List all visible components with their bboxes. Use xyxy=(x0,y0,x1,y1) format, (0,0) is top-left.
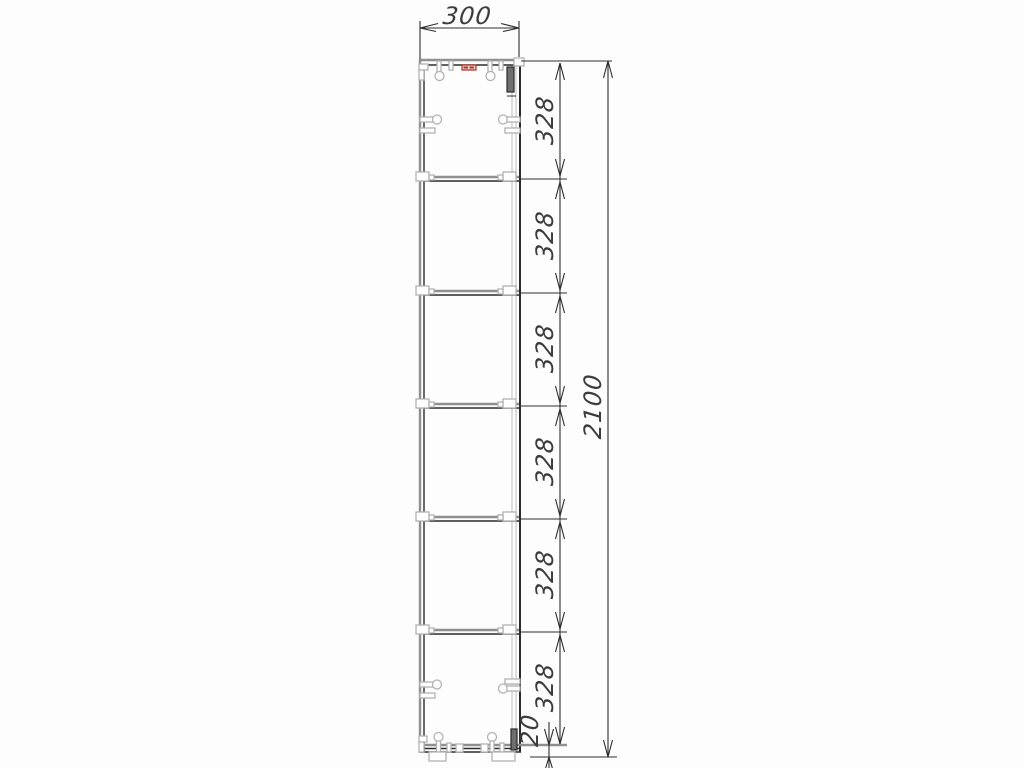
dimension-plinth: 20 xyxy=(516,712,553,768)
section-height-label: 328 xyxy=(531,94,559,146)
dimension-width: 300 xyxy=(420,2,519,59)
section-height-label: 328 xyxy=(531,209,559,261)
screw-icon xyxy=(420,680,442,698)
screw-icon xyxy=(499,115,521,133)
corner-block-icon xyxy=(514,58,524,66)
foot-icon xyxy=(492,752,515,761)
screw-icon xyxy=(486,61,495,81)
dimension-total-height: 2100 xyxy=(521,61,617,757)
screw-icon xyxy=(499,679,521,693)
foot-icon xyxy=(429,752,446,761)
section-height-label: 328 xyxy=(531,322,559,374)
screw-icon xyxy=(420,115,442,133)
section-height-label: 328 xyxy=(531,435,559,487)
top-hardware xyxy=(419,58,524,96)
dowel-icon xyxy=(449,61,453,70)
edge-connector-icon xyxy=(481,744,488,752)
mounting-plate-icon xyxy=(462,65,476,70)
width-label: 300 xyxy=(441,2,493,30)
side-screws-top-section xyxy=(420,115,520,133)
dimension-sections: 328 328 328 328 328 328 xyxy=(521,63,567,744)
corner-bracket-icon xyxy=(419,64,428,80)
section-height-label: 328 xyxy=(531,661,559,713)
total-height-label: 2100 xyxy=(579,372,607,440)
cabinet-elevation-drawing: 300 328 328 328 328 328 328 2100 xyxy=(0,0,1024,768)
edge-connector-icon xyxy=(456,744,463,752)
hinge-icon xyxy=(507,67,516,96)
section-height-label: 328 xyxy=(531,548,559,600)
side-screws-bottom-section xyxy=(420,679,520,698)
dowel-icon xyxy=(499,61,503,70)
screw-icon xyxy=(435,61,444,81)
dowel-icon xyxy=(500,743,504,752)
drawing-canvas: 300 328 328 328 328 328 328 2100 xyxy=(0,0,1024,768)
dowel-icon xyxy=(447,743,451,752)
plinth-label: 20 xyxy=(516,712,544,747)
